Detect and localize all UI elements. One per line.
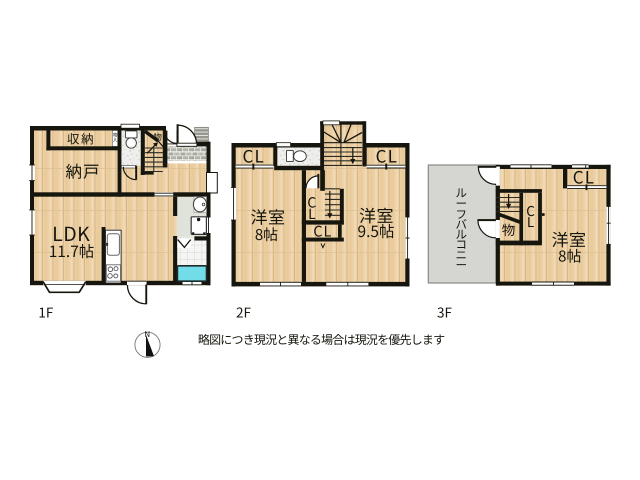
svg-text:ルーフバルコニー: ルーフバルコニー xyxy=(453,186,469,268)
svg-text:2F: 2F xyxy=(236,301,251,321)
svg-text:11.7帖: 11.7帖 xyxy=(49,240,95,262)
svg-text:1F: 1F xyxy=(38,301,53,321)
svg-text:N: N xyxy=(144,329,150,340)
svg-text:L: L xyxy=(527,211,534,231)
svg-text:略図につき現況と異なる場合は現況を優先します: 略図につき現況と異なる場合は現況を優先します xyxy=(198,331,445,348)
svg-text:CL: CL xyxy=(573,164,595,189)
svg-text:CL: CL xyxy=(313,221,332,242)
svg-text:9.5帖: 9.5帖 xyxy=(357,220,394,242)
svg-text:収納: 収納 xyxy=(67,128,95,147)
svg-text:CL: CL xyxy=(242,142,264,167)
svg-text:8帖: 8帖 xyxy=(558,245,581,266)
svg-text:8帖: 8帖 xyxy=(255,224,278,245)
svg-text:納戸: 納戸 xyxy=(66,158,101,182)
svg-text:物: 物 xyxy=(502,219,516,239)
svg-text:物: 物 xyxy=(153,131,162,143)
svg-text:入: 入 xyxy=(113,138,118,144)
svg-text:CL: CL xyxy=(376,142,398,167)
svg-text:3F: 3F xyxy=(437,301,452,321)
